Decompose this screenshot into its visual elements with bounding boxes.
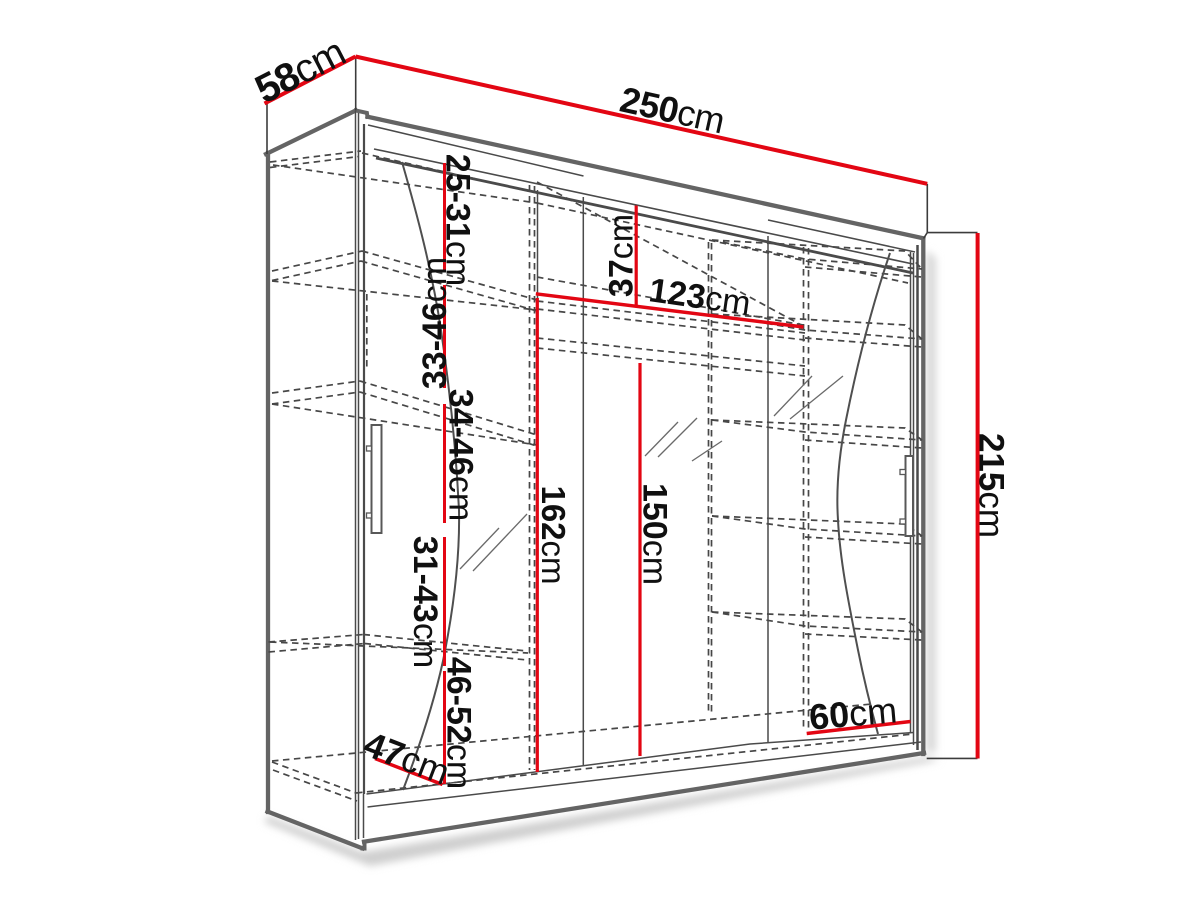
- svg-text:162cm: 162cm: [535, 485, 572, 584]
- svg-text:60cm: 60cm: [807, 689, 898, 738]
- svg-text:37cm: 37cm: [603, 214, 641, 297]
- svg-text:58cm: 58cm: [248, 30, 352, 112]
- svg-text:31-43cm: 31-43cm: [406, 536, 444, 668]
- svg-text:34-46cm: 34-46cm: [442, 389, 480, 521]
- svg-text:150cm: 150cm: [636, 483, 674, 585]
- svg-text:250cm: 250cm: [616, 79, 728, 142]
- svg-text:33-46cm: 33-46cm: [416, 257, 454, 389]
- svg-text:215cm: 215cm: [972, 433, 1011, 538]
